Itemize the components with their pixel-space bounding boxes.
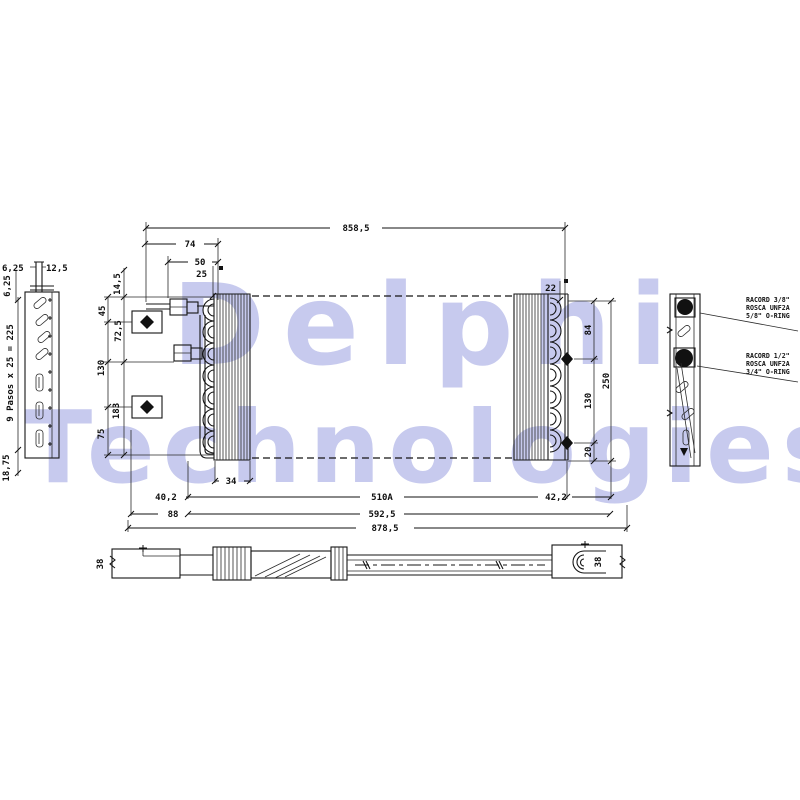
dim-12-5: 12,5 xyxy=(46,264,68,274)
dim-6-25-side: 6,25 xyxy=(3,275,13,297)
fitting-label-upper-1: RACORD 3/8" xyxy=(746,296,790,304)
dim-45: 45 xyxy=(98,306,108,317)
condenser-technical-drawing: 858,5 74 50 25 22 14,5 45 72,5 130 183 7… xyxy=(0,0,800,800)
dim-84: 84 xyxy=(584,324,594,335)
dim-592-5: 592,5 xyxy=(368,510,395,520)
dim-14-5: 14,5 xyxy=(113,273,123,295)
dim-510a: 510A xyxy=(371,493,393,503)
dim-878-5: 878,5 xyxy=(371,524,398,534)
dim-88: 88 xyxy=(168,510,179,520)
front-view xyxy=(132,266,573,460)
dim-42-2: 42,2 xyxy=(545,493,567,503)
technical-drawing-page: Delphi Technologies xyxy=(0,0,800,800)
dim-20: 20 xyxy=(584,447,594,458)
dim-pasos: 9 Pasos x 25 = 225 xyxy=(6,324,16,422)
dim-130-left: 130 xyxy=(97,360,107,376)
fitting-labels: RACORD 3/8" ROSCA UNF2A 5/8" O-RING RACO… xyxy=(746,296,790,376)
fitting-port-lower xyxy=(675,349,693,367)
fitting-label-upper-2: ROSCA UNF2A xyxy=(746,304,790,312)
dim-50: 50 xyxy=(195,258,206,268)
dim-6-25-top: 6,25 xyxy=(2,264,24,274)
dim-74: 74 xyxy=(185,240,196,250)
dim-130-right: 130 xyxy=(584,393,594,409)
rivet-marks xyxy=(48,298,52,446)
fitting-port-upper xyxy=(677,299,693,315)
dim-25: 25 xyxy=(196,270,207,280)
dim-overall-top: 858,5 xyxy=(342,224,369,234)
dim-72-5: 72,5 xyxy=(114,320,124,342)
dim-250: 250 xyxy=(602,373,612,389)
fitting-label-lower-2: ROSCA UNF2A xyxy=(746,360,790,368)
dim-38-right: 38 xyxy=(594,557,604,568)
dimension-labels: 858,5 74 50 25 22 14,5 45 72,5 130 183 7… xyxy=(2,224,612,569)
fitting-label-lower-1: RACORD 1/2" xyxy=(746,352,790,360)
bottom-view xyxy=(110,541,625,580)
dim-22: 22 xyxy=(545,284,556,294)
dim-34: 34 xyxy=(226,477,237,487)
dim-75: 75 xyxy=(97,429,107,440)
fitting-label-upper-3: 5/8" O-RING xyxy=(746,312,790,320)
fitting-label-lower-3: 3/4" O-RING xyxy=(746,368,790,376)
left-end-view xyxy=(25,262,59,458)
dim-38-left: 38 xyxy=(96,559,106,570)
dim-40-2: 40,2 xyxy=(155,493,177,503)
mounting-point-diamonds xyxy=(561,352,573,450)
dim-183: 183 xyxy=(112,403,122,419)
dim-18-75: 18,75 xyxy=(2,454,12,481)
